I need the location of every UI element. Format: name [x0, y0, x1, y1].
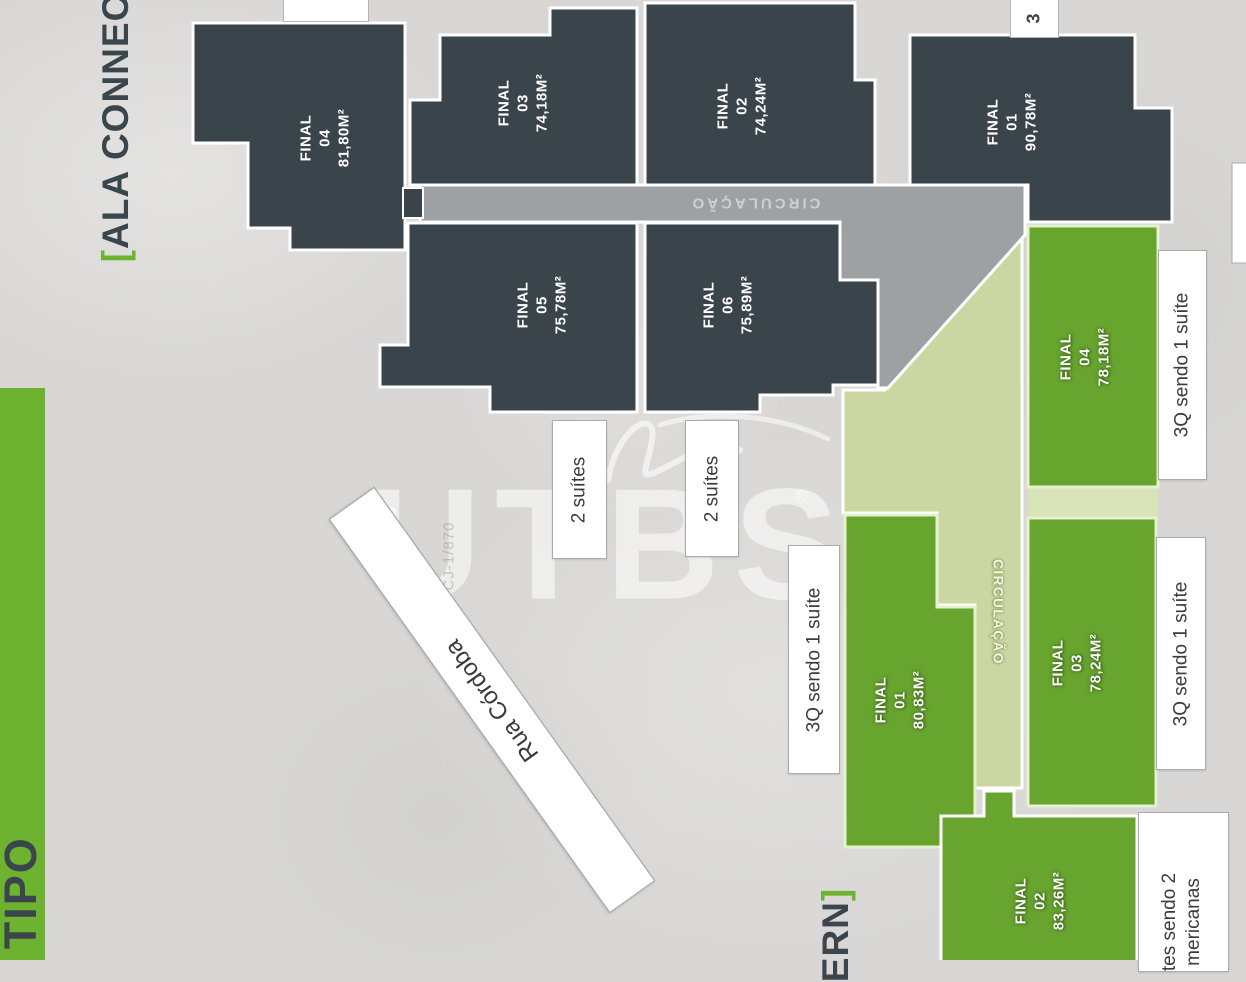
wing-label-top-text: ALA CONNEC	[95, 0, 136, 249]
tag-text: 3Q sendo 1 suíte	[1170, 581, 1192, 726]
street-name: Rua Córdoba	[439, 634, 545, 766]
unit-label-green-final-02: FINAL 02 83,26M²	[1012, 872, 1069, 931]
unit-label-dark-final-04: FINAL 04 81,80M²	[297, 109, 354, 168]
unit-label-green-final-03: FINAL 03 78,24M²	[1049, 634, 1106, 693]
tag-2-suites-b: 2 suítes	[685, 420, 739, 557]
green-bracket-icon: [	[95, 249, 136, 262]
unit-label-dark-final-05: FINAL 05 75,78M²	[514, 276, 571, 335]
unit-name: FINAL	[714, 77, 733, 136]
unit-area: 81,80M²	[335, 109, 354, 168]
unit-label-dark-final-06: FINAL 06 75,89M²	[700, 276, 757, 335]
unit-number: 06	[719, 276, 738, 335]
cut-label-box-top	[283, 0, 369, 22]
unit-label-dark-final-02: FINAL 02 74,24M²	[714, 77, 771, 136]
unit-name: FINAL	[1057, 328, 1076, 387]
plan-title-bar: NTA PAVIMENTO TIPO	[0, 388, 45, 960]
unit-label-dark-final-03: FINAL 03 74,18M²	[495, 74, 552, 133]
unit-number: 02	[733, 77, 752, 136]
unit-name: FINAL	[297, 109, 316, 168]
floor-marker-number: 3	[1024, 13, 1045, 23]
unit-area: 74,18M²	[533, 74, 552, 133]
unit-number: 04	[1076, 328, 1095, 387]
tag-line-1: tes sendo 2	[1158, 873, 1182, 971]
unit-area: 90,78M²	[1022, 93, 1041, 152]
unit-area: 75,78M²	[552, 276, 571, 335]
tag-2-suites-a: 2 suítes	[552, 420, 607, 559]
unit-name: FINAL	[984, 93, 1003, 152]
wing-label-bottom-text: ERN	[815, 901, 856, 982]
unit-area: 74,24M²	[752, 77, 771, 136]
green-bracket-icon: ]	[815, 888, 856, 901]
unit-label-green-final-04: FINAL 04 78,18M²	[1057, 328, 1114, 387]
unit-name: FINAL	[514, 276, 533, 335]
wing-label-bottom: ERN]	[815, 888, 857, 982]
unit-area: 78,18M²	[1095, 328, 1114, 387]
tag-text: 2 suítes	[569, 456, 591, 523]
corridor-label-top: CIRCULAÇÃO	[690, 195, 821, 212]
corridor-label-green: CIRCULAÇÃO	[991, 559, 1006, 665]
tag-text: 2 suítes	[701, 455, 723, 522]
tag-suites-partial-text: tes sendo 2 mericanas	[1158, 873, 1206, 971]
unit-area: 80,83M²	[910, 671, 929, 730]
unit-name: FINAL	[495, 74, 514, 133]
tag-text: 3Q sendo 1 suíte	[803, 587, 825, 732]
tag-text: 3Q sendo 1 suíte	[1172, 293, 1194, 438]
unit-number: 03	[1068, 634, 1087, 693]
unit-name: FINAL	[1049, 634, 1068, 693]
unit-label-green-final-01: FINAL 01 80,83M²	[872, 671, 929, 730]
plan-title: NTA PAVIMENTO TIPO	[0, 836, 45, 960]
unit-name: FINAL	[872, 671, 891, 730]
tag-line-2: mericanas	[1182, 873, 1206, 971]
unit-number: 05	[533, 276, 552, 335]
tag-3q-suite-c: 3Q sendo 1 suíte	[788, 545, 840, 774]
unit-name: FINAL	[1012, 872, 1031, 931]
unit-area: 83,26M²	[1050, 872, 1069, 931]
tag-3q-suite-b: 3Q sendo 1 suíte	[1156, 537, 1206, 770]
unit-area: 78,24M²	[1087, 634, 1106, 693]
unit-number: 01	[1003, 93, 1022, 152]
unit-name: FINAL	[700, 276, 719, 335]
unit-area: 75,89M²	[738, 276, 757, 335]
wing-label-top: [ALA CONNEC	[95, 0, 137, 262]
unit-number: 03	[514, 74, 533, 133]
floor-marker-box: 3	[1010, 0, 1059, 38]
unit-number: 02	[1031, 872, 1050, 931]
unit-label-dark-final-01: FINAL 01 90,78M²	[984, 93, 1041, 152]
tag-3q-suite-a: 3Q sendo 1 suíte	[1158, 250, 1207, 480]
unit-number: 04	[316, 109, 335, 168]
unit-number: 01	[891, 671, 910, 730]
